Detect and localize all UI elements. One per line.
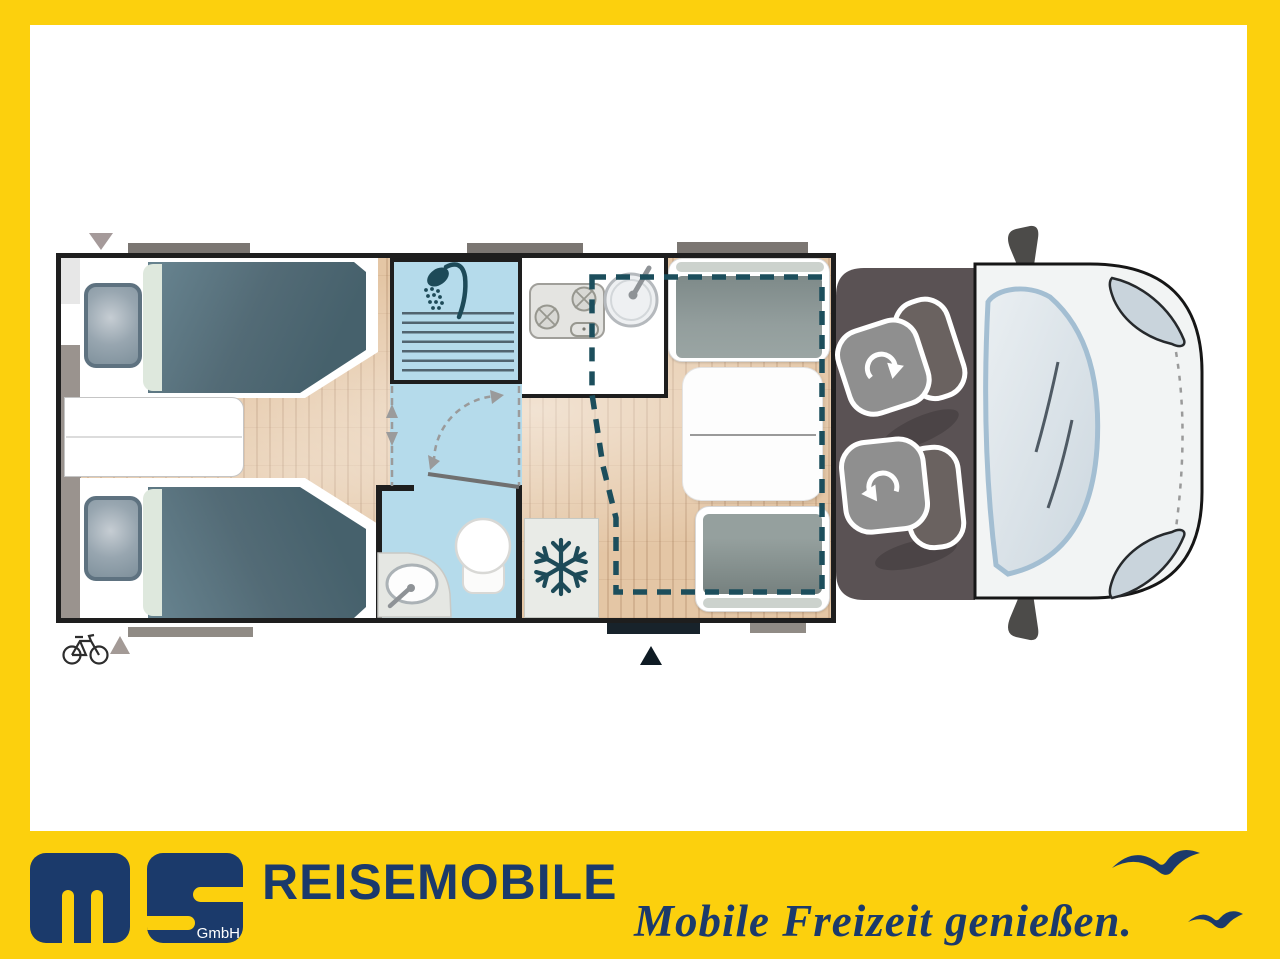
dinette-table-seam	[690, 434, 816, 436]
mattress-edge-bottom	[143, 489, 162, 616]
bicycle-icon	[64, 635, 108, 664]
driver-cab	[828, 226, 1202, 640]
mattress-edge-top	[143, 264, 162, 391]
refrigerator	[524, 518, 599, 618]
hood-crease	[1174, 352, 1183, 542]
dealer-slogan: Mobile Freizeit genießen.	[634, 899, 1133, 944]
dealer-wordmark: REISEMOBILE	[262, 857, 617, 907]
logo-letter-m	[30, 853, 130, 943]
entrance-arrow-icon	[640, 646, 662, 665]
pillow-top	[84, 283, 142, 368]
awning-bar	[128, 627, 253, 637]
frame-right	[1247, 25, 1280, 831]
headlight-icon	[1110, 278, 1185, 598]
cab-floor	[836, 268, 975, 600]
marker-arrow-icon	[89, 233, 113, 250]
swivel-seat-passenger	[839, 433, 966, 557]
advertisement-image: GmbH REISEMOBILE Mobile Freizeit genieße…	[0, 0, 1280, 959]
windshield	[986, 289, 1098, 574]
rotation-arrow-icon	[859, 472, 898, 503]
awning-bar	[467, 243, 583, 253]
frame-left	[0, 25, 30, 831]
dinette-headrest-bottom	[703, 598, 822, 608]
rotation-arrow-icon	[864, 348, 907, 386]
kitchen-block	[522, 258, 668, 398]
vehicle-front-body	[975, 264, 1202, 598]
shower-tray-ribs	[402, 312, 514, 374]
pillow-bottom	[84, 496, 142, 581]
dinette-cushion-top	[676, 276, 822, 358]
entrance-door-bar	[607, 623, 700, 634]
awning-bar	[677, 242, 808, 253]
dinette-cushion-bottom	[703, 514, 822, 594]
logo-notch	[193, 887, 243, 902]
logo-slit	[91, 890, 103, 943]
rear-wall-strip-gray	[61, 345, 81, 618]
toilet-room	[378, 487, 522, 618]
bed-step-cabinet-seam	[66, 436, 242, 438]
frame-top	[0, 0, 1280, 25]
awning-bar	[750, 623, 806, 633]
side-mirror-icon	[1008, 226, 1038, 640]
awning-bar	[128, 243, 250, 253]
dinette-headrest-top	[676, 262, 824, 272]
washroom-wall-right	[516, 485, 522, 618]
logo-suffix: GmbH	[185, 925, 240, 942]
washroom-wall-left	[376, 485, 382, 618]
logo-slit	[62, 890, 74, 943]
swivel-seat-driver	[828, 293, 971, 425]
seat-shadow	[872, 531, 960, 577]
rear-wall-strip-light	[61, 258, 81, 304]
washroom-wall-stub	[376, 485, 414, 491]
marker-arrow-icon	[110, 636, 130, 654]
seat-shadow	[876, 401, 963, 459]
wiper-icon	[1036, 362, 1072, 508]
